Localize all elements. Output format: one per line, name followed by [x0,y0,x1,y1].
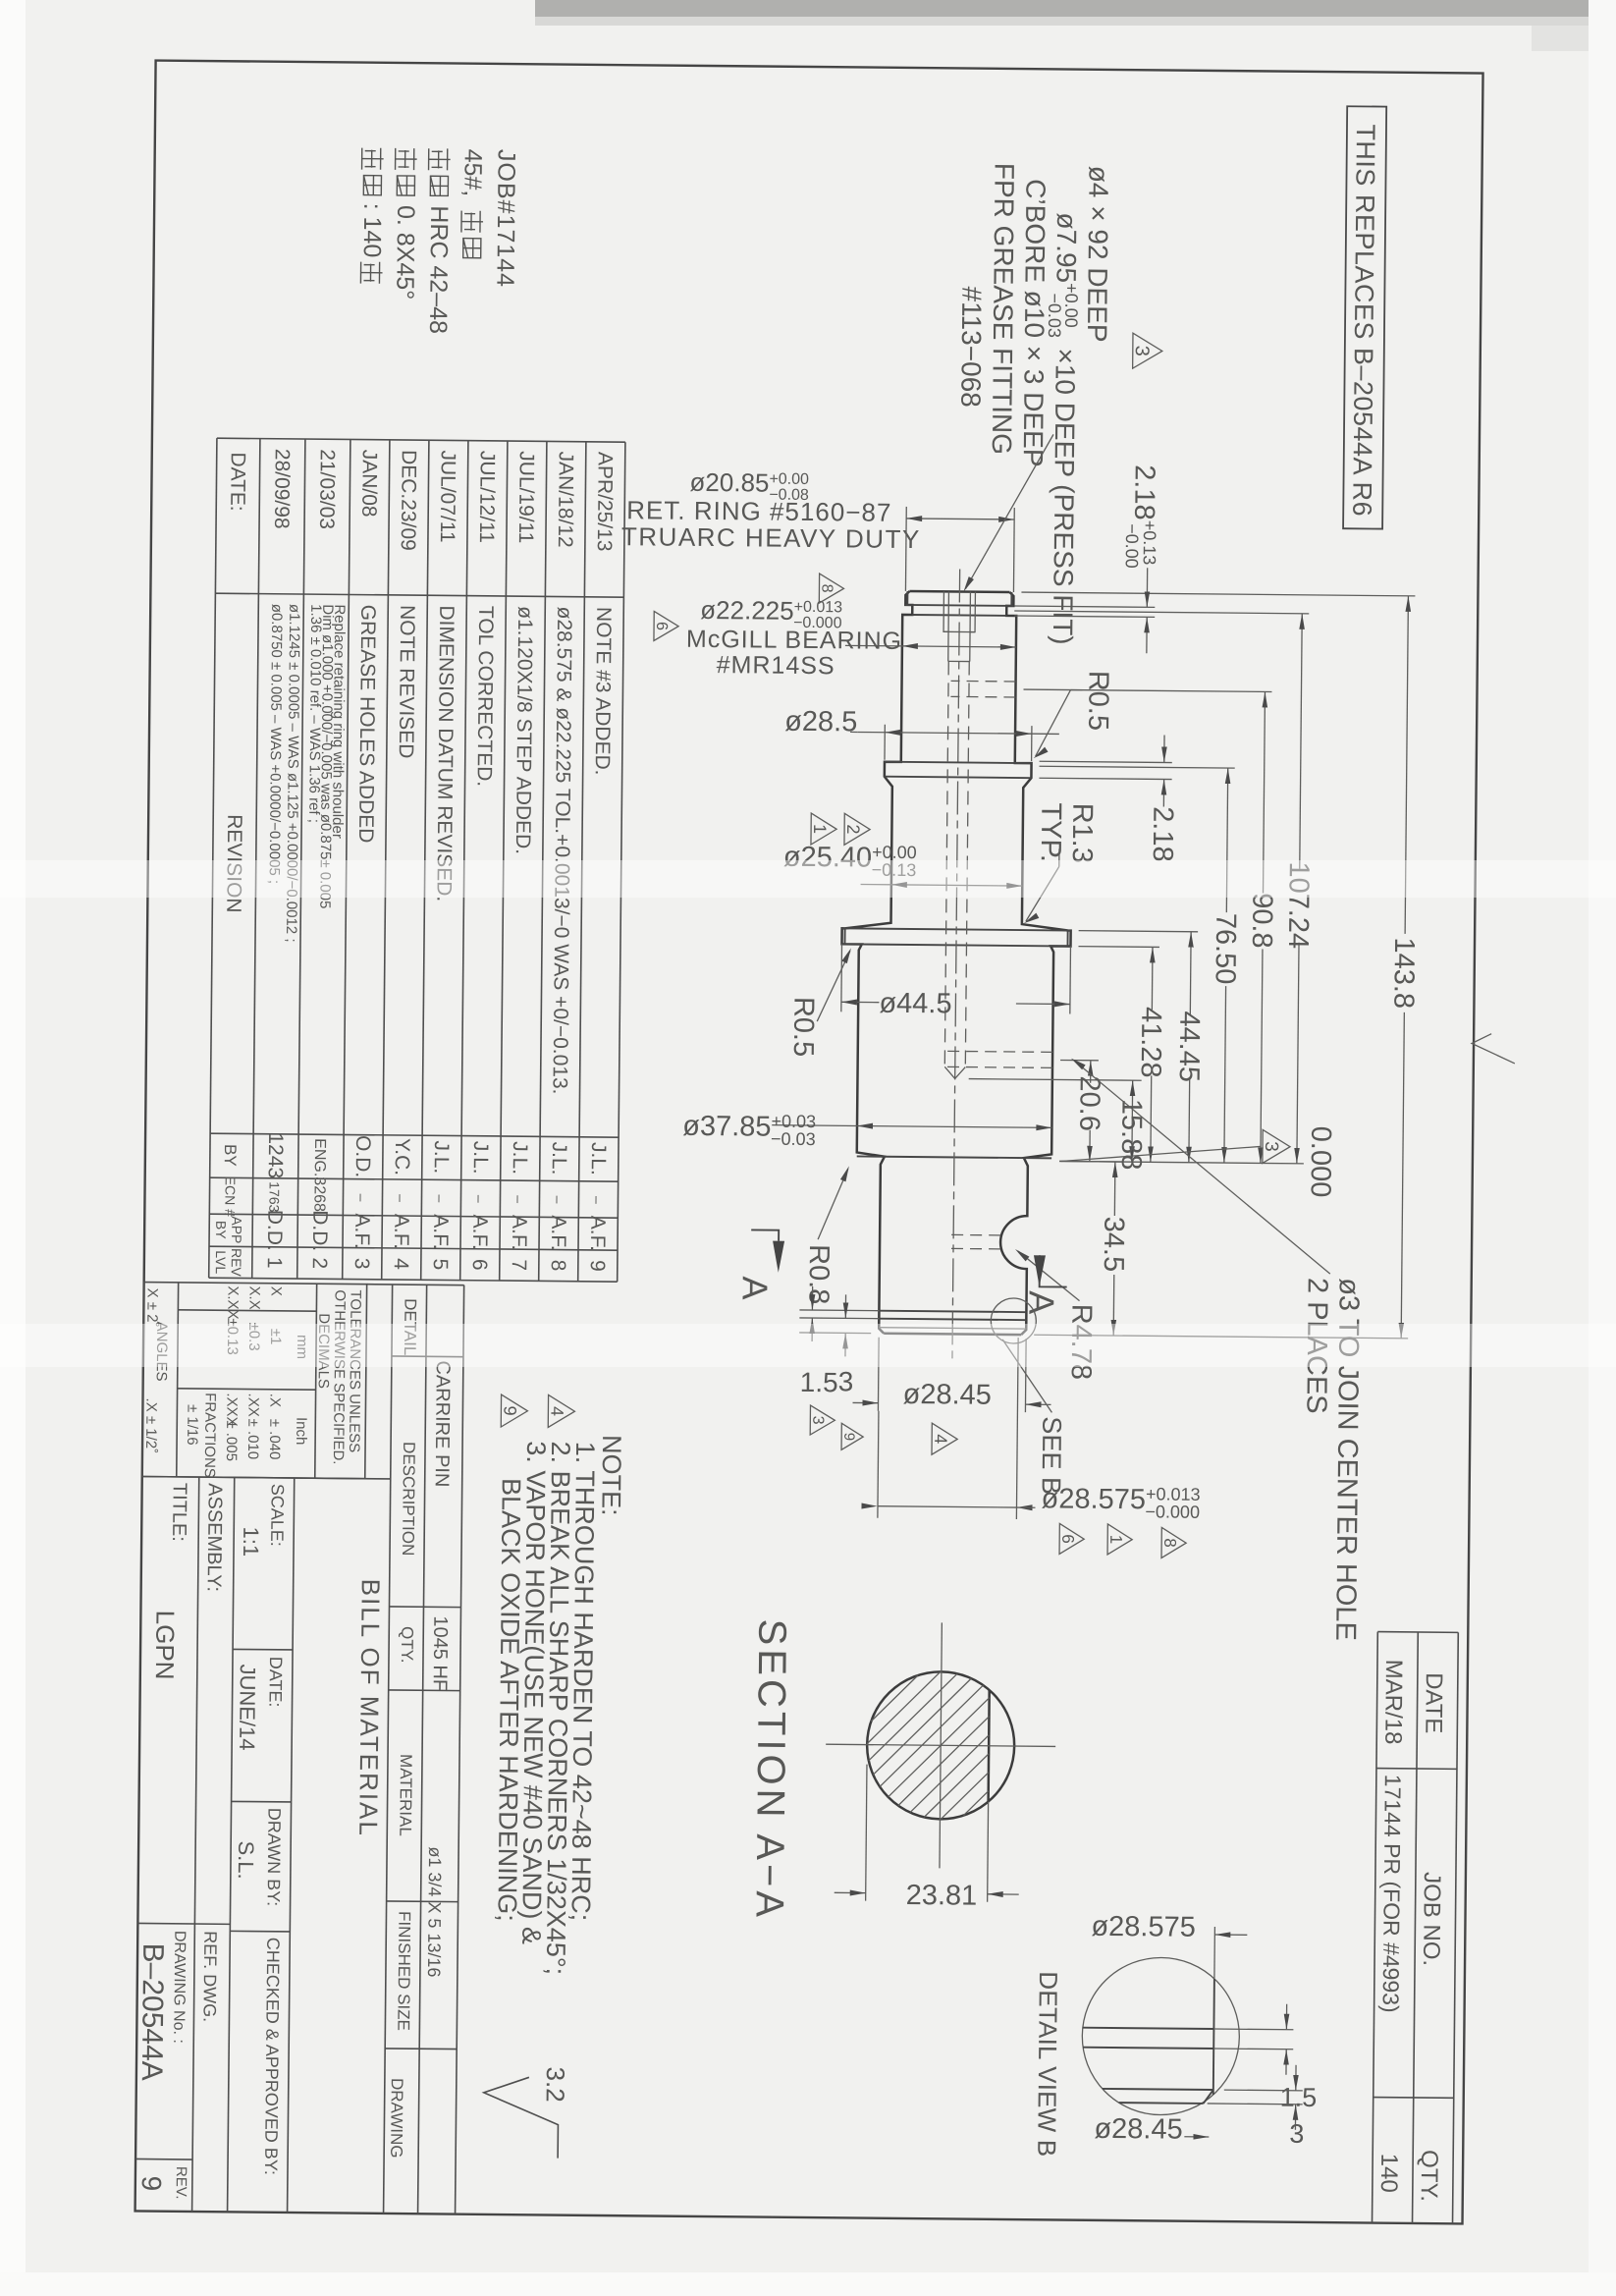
svg-text:–: – [432,1194,448,1202]
svg-text:9: 9 [136,2175,167,2191]
svg-text:#MR14SS: #MR14SS [717,651,835,680]
svg-text:A.F.: A.F. [586,1216,609,1251]
svg-text:3: 3 [809,1416,826,1425]
svg-text:1763: 1763 [266,1181,282,1213]
svg-text:X.X: X.X [245,1286,262,1310]
svg-text:A.F.: A.F. [390,1214,412,1249]
svg-text:ø28.5: ø28.5 [784,706,857,738]
svg-text:–: – [353,1194,369,1202]
svg-text:–: – [471,1195,487,1203]
svg-text:R0.5: R0.5 [787,997,820,1058]
svg-text:J.L.: J.L. [587,1142,610,1175]
svg-text:D.D.: D.D. [308,1210,331,1251]
svg-text:SECTION A−A: SECTION A−A [747,1618,793,1921]
svg-text:SCALE:: SCALE: [267,1484,288,1547]
svg-text:3: 3 [1289,2119,1304,2149]
svg-text:REV: REV [229,1248,244,1278]
svg-text:FRACTIONS: FRACTIONS [201,1393,219,1478]
svg-text:4: 4 [931,1434,950,1444]
svg-text:34.5: 34.5 [1098,1217,1130,1273]
svg-text:ø1 3/4 X 5 13/16: ø1 3/4 X 5 13/16 [424,1846,445,1977]
svg-text:.XX: .XX [244,1394,261,1417]
svg-text:3: 3 [350,1258,373,1270]
svg-text:ø28.575 & ø22.225 TOL.+0.0013/: ø28.575 & ø22.225 TOL.+0.0013/−0 WAS +0/… [549,606,576,1094]
svg-text:TYP.: TYP. [1035,802,1067,862]
svg-text:J.L.: J.L. [430,1140,453,1174]
svg-text:6: 6 [1058,1534,1077,1544]
svg-text:JUL/07/11: JUL/07/11 [436,450,459,542]
svg-text:DATE: DATE [1420,1672,1447,1733]
svg-text:6: 6 [653,622,670,630]
svg-text:140: 140 [1375,2154,1402,2193]
svg-text:8: 8 [1160,1538,1179,1548]
svg-text:A: A [1021,1290,1061,1314]
svg-text:17144 PR (FOR #4993): 17144 PR (FOR #4993) [1378,1775,1406,2013]
svg-text:DEC.23/09: DEC.23/09 [397,450,420,551]
svg-text:3: 3 [1261,1141,1281,1152]
svg-text:.X: .X [266,1394,283,1407]
svg-text:TITLE:: TITLE: [168,1483,190,1542]
svg-text:± .010: ± .010 [244,1419,261,1460]
svg-text:GREASE HOLES ADDED: GREASE HOLES ADDED [354,605,379,844]
svg-text:± 1/16: ± 1/16 [184,1404,200,1446]
svg-text:ø28.45: ø28.45 [1094,2113,1183,2146]
svg-text:28/09/98: 28/09/98 [270,449,294,529]
svg-text:BY: BY [221,1144,240,1167]
svg-text:APR/25/13: APR/25/13 [593,452,617,552]
svg-text:5: 5 [429,1258,452,1270]
svg-text:FPR GREASE FITTING: FPR GREASE FITTING [987,163,1020,455]
svg-text:CHECKED & APPROVED BY:: CHECKED & APPROVED BY: [261,1938,283,2175]
svg-text:REF. DWG.: REF. DWG. [199,1931,220,2022]
svg-text:−0.00: −0.00 [1122,523,1142,569]
svg-text:2.18: 2.18 [1147,806,1179,862]
svg-text:J.L.: J.L. [548,1142,570,1175]
svg-text:DESCRIPTION: DESCRIPTION [399,1442,418,1556]
svg-text:DATE:: DATE: [226,452,249,512]
svg-text:2: 2 [843,824,863,834]
svg-text:#113−068: #113−068 [955,286,987,408]
svg-text:45#,: 45#, [458,149,486,197]
svg-text:BLACK OXIDE AFTER HARDENING;: BLACK OXIDE AFTER HARDENING; [492,1478,525,1922]
svg-text:A.F.: A.F. [468,1215,491,1250]
svg-text:HRC 42–48: HRC 42–48 [424,205,453,334]
svg-text:JUNE/14: JUNE/14 [235,1664,260,1750]
svg-text:CARRIRE PIN: CARRIRE PIN [431,1360,454,1487]
svg-text:A: A [735,1276,776,1299]
svg-text:: 140: : 140 [358,203,387,258]
svg-text:20.6: 20.6 [1073,1075,1105,1131]
svg-text:DIMENSION DATUM REVISED.: DIMENSION DATUM REVISED. [432,605,458,902]
svg-text:DETAIL VIEW B: DETAIL VIEW B [1032,1971,1063,2157]
svg-text:LGPN: LGPN [150,1611,181,1680]
svg-text:−0.000: −0.000 [1145,1502,1200,1522]
svg-text:23.81: 23.81 [906,1880,978,1912]
svg-text:DRAWING No. :: DRAWING No. : [170,1931,188,2044]
svg-text:2: 2 [308,1257,331,1269]
svg-text:8: 8 [818,584,835,593]
svg-text:−0.03: −0.03 [771,1129,816,1149]
svg-text:Inch: Inch [293,1417,309,1446]
svg-text:R1.3: R1.3 [1066,803,1099,864]
svg-text:3.2: 3.2 [541,2066,570,2102]
svg-text:A.F.: A.F. [429,1214,452,1249]
svg-text:4: 4 [547,1406,566,1416]
svg-text:NOTE REVISED: NOTE REVISED [395,605,419,759]
svg-text:DRAWING: DRAWING [387,2078,406,2159]
svg-text:JAN/18/12: JAN/18/12 [554,451,577,547]
svg-text:TRUARC HEAVY DUTY: TRUARC HEAVY DUTY [621,521,921,554]
svg-text:8: 8 [547,1260,569,1272]
svg-text:R0.8: R0.8 [802,1244,835,1305]
svg-text:BILL OF MATERIAL: BILL OF MATERIAL [353,1579,386,1837]
svg-text:MAR/18: MAR/18 [1379,1660,1407,1745]
svg-text:NOTE #3 ADDED.: NOTE #3 ADDED. [591,607,616,776]
svg-text:1:1: 1:1 [239,1526,263,1557]
svg-text:SEE B: SEE B [1037,1416,1067,1495]
svg-text:C’BORE ø10 × 3 DEEP: C’BORE ø10 × 3 DEEP [1018,179,1051,467]
svg-text:ø44.5: ø44.5 [879,988,951,1020]
svg-text:143.8: 143.8 [1387,937,1420,1009]
svg-text:BY: BY [213,1221,229,1239]
svg-text:41.28: 41.28 [1135,1007,1167,1078]
svg-text:QTY.: QTY. [398,1626,416,1664]
svg-text:ø1.120X1/8 STEP ADDED.: ø1.120X1/8 STEP ADDED. [512,606,536,854]
svg-text:X: X [268,1286,285,1296]
svg-text:0. 8X45°: 0. 8X45° [391,205,419,300]
svg-text:LVL: LVL [213,1250,229,1274]
svg-text:1.5: 1.5 [1280,2083,1318,2112]
svg-text:–: – [511,1195,526,1203]
svg-text:ø28.575: ø28.575 [1091,1911,1196,1943]
svg-text:.X ± 1/2˚: .X ± 1/2˚ [142,1398,160,1454]
svg-text:44.45: 44.45 [1173,1011,1206,1082]
svg-text:–: – [589,1196,605,1204]
svg-text:X.XX: X.XX [224,1285,241,1319]
svg-text:± .005: ± .005 [223,1420,240,1461]
svg-text:JUL/12/11: JUL/12/11 [475,451,499,543]
svg-text:1243: 1243 [264,1132,287,1178]
svg-text:JUL/19/11: JUL/19/11 [514,451,538,543]
svg-text:D.D.: D.D. [263,1210,286,1251]
svg-text:FINISHED SIZE: FINISHED SIZE [394,1911,413,2031]
svg-text:TOL CORRECTED.: TOL CORRECTED. [473,606,498,788]
svg-text:ASSEMBLY:: ASSEMBLY: [203,1483,226,1592]
svg-text:3: 3 [838,1366,854,1396]
svg-text:ø0.8750 ± 0.005 – WAS +0.0000: ø0.8750 ± 0.005 – WAS +0.0000/−0.0005 ; [266,604,286,885]
svg-text:90.8: 90.8 [1246,893,1278,949]
svg-text:Y.C.: Y.C. [391,1138,413,1175]
svg-text:DATE:: DATE: [266,1657,286,1708]
svg-text:J.L.: J.L. [469,1141,492,1175]
svg-text:–: – [393,1194,408,1202]
svg-text:REV.: REV. [173,2166,189,2200]
svg-text:APP: APP [229,1216,244,1243]
svg-text:1.5: 1.5 [800,1367,838,1397]
svg-text:0.000: 0.000 [1305,1126,1337,1198]
svg-text:A.F.: A.F. [508,1215,530,1250]
svg-text:9: 9 [586,1260,609,1272]
svg-text:–: – [550,1196,566,1204]
svg-text:J.L.: J.L. [509,1141,531,1175]
svg-text:ENG.3268: ENG.3268 [310,1138,328,1212]
svg-text:×10 DEEP (PRESS FIT): ×10 DEEP (PRESS FIT) [1048,348,1081,644]
svg-text:6: 6 [468,1259,491,1271]
svg-text:ø4 × 92 DEEP: ø4 × 92 DEEP [1082,166,1114,343]
svg-text:X ± 2˚: X ± 2˚ [143,1288,160,1328]
svg-text:ECN #: ECN # [222,1176,238,1218]
svg-text:JOB NO.: JOB NO. [1418,1872,1445,1966]
svg-text:1: 1 [263,1257,286,1269]
svg-text:1: 1 [1106,1535,1125,1545]
svg-text:76.50: 76.50 [1210,913,1242,985]
svg-text:7: 7 [508,1259,530,1271]
svg-text:± .040: ± .040 [266,1419,283,1460]
svg-text:4: 4 [390,1258,412,1270]
svg-text:THIS REPLACES B–20544A R6: THIS REPLACES B–20544A R6 [1347,124,1380,517]
svg-text:1045 HF: 1045 HF [429,1615,452,1691]
svg-text:A.F.: A.F. [547,1215,569,1250]
svg-text:1.36 ± 0.010 ref. – WAS 1.36 r: 1.36 ± 0.010 ref. – WAS 1.36 ref ; [305,604,324,823]
svg-text:B–20544A: B–20544A [135,1942,169,2080]
svg-text:1: 1 [810,824,830,834]
svg-text:R0.5: R0.5 [1082,671,1114,732]
svg-text:9: 9 [840,1433,857,1442]
svg-text:JOB#17144: JOB#17144 [491,149,519,288]
svg-text:A.F.: A.F. [350,1213,373,1248]
svg-text:QTY.: QTY. [1416,2150,1443,2202]
svg-text:9: 9 [500,1405,519,1415]
svg-text:S.L.: S.L. [234,1840,258,1879]
svg-text:O.D.: O.D. [351,1135,374,1177]
svg-text:DRAWN BY:: DRAWN BY: [264,1808,285,1907]
svg-text:MATERIAL: MATERIAL [396,1754,415,1836]
svg-text:3: 3 [1131,346,1153,356]
svg-text:ø28.45: ø28.45 [902,1379,992,1411]
svg-text:JAN/08: JAN/08 [357,450,381,518]
svg-text:21/03/03: 21/03/03 [315,449,339,529]
svg-text:15.88: 15.88 [1115,1099,1148,1171]
